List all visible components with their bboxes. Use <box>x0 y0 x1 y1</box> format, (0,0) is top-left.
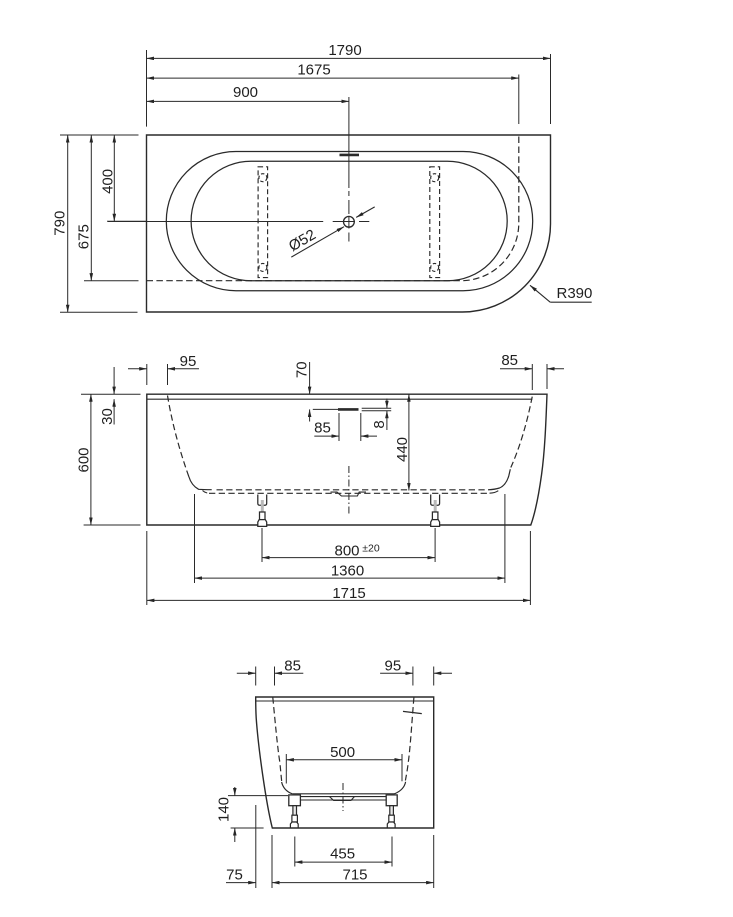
svg-text:30: 30 <box>99 408 116 425</box>
svg-text:800: 800 <box>334 542 359 559</box>
svg-text:675: 675 <box>76 224 93 249</box>
svg-text:±20: ±20 <box>362 543 380 555</box>
svg-text:400: 400 <box>99 169 116 194</box>
svg-text:600: 600 <box>76 447 93 472</box>
svg-text:715: 715 <box>342 867 367 884</box>
svg-text:500: 500 <box>330 744 355 761</box>
svg-text:8: 8 <box>371 420 388 428</box>
svg-text:75: 75 <box>226 867 243 884</box>
svg-text:1715: 1715 <box>332 585 365 602</box>
svg-text:455: 455 <box>330 845 355 862</box>
svg-text:70: 70 <box>294 361 311 378</box>
svg-text:440: 440 <box>394 437 411 462</box>
svg-text:85: 85 <box>501 352 518 369</box>
svg-text:1675: 1675 <box>297 62 330 79</box>
svg-text:95: 95 <box>180 353 197 370</box>
svg-text:85: 85 <box>284 658 301 675</box>
svg-text:1360: 1360 <box>331 563 364 580</box>
svg-text:790: 790 <box>51 211 68 236</box>
svg-text:R390: R390 <box>557 285 593 302</box>
svg-text:85: 85 <box>314 420 331 437</box>
svg-text:900: 900 <box>233 84 258 101</box>
svg-text:1790: 1790 <box>328 42 361 59</box>
svg-text:95: 95 <box>385 658 402 675</box>
svg-text:140: 140 <box>215 797 232 822</box>
